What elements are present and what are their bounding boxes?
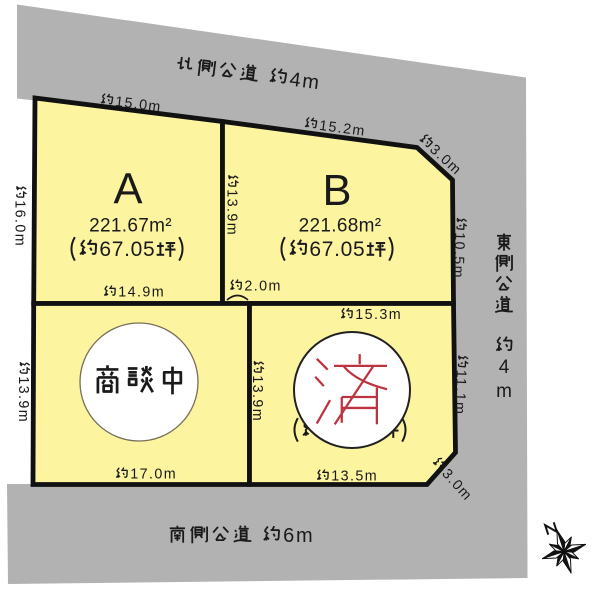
svg-text:13.9m: 13.9m bbox=[249, 375, 265, 422]
svg-text:13.5m: 13.5m bbox=[331, 469, 378, 485]
svg-text:221.68m²: 221.68m² bbox=[299, 216, 382, 237]
svg-text:13.9m: 13.9m bbox=[223, 189, 239, 236]
svg-text:11.1m: 11.1m bbox=[451, 369, 469, 415]
svg-text:15.3m: 15.3m bbox=[355, 307, 402, 323]
svg-text:A: A bbox=[113, 166, 142, 214]
svg-text:67.05: 67.05 bbox=[309, 238, 365, 261]
svg-text:4: 4 bbox=[499, 357, 510, 378]
svg-text:16.0m: 16.0m bbox=[11, 200, 27, 247]
svg-text:14.9m: 14.9m bbox=[118, 285, 165, 301]
svg-text:B: B bbox=[322, 167, 351, 215]
svg-text:6m: 6m bbox=[283, 525, 314, 547]
svg-text:221.67m²: 221.67m² bbox=[89, 216, 172, 237]
svg-text:10.5m: 10.5m bbox=[450, 232, 468, 279]
svg-text:17.0m: 17.0m bbox=[130, 467, 177, 483]
svg-text:m: m bbox=[496, 381, 512, 402]
svg-text:67.05: 67.05 bbox=[99, 238, 155, 261]
svg-text:2.0m: 2.0m bbox=[244, 279, 281, 295]
svg-text:13.9m: 13.9m bbox=[15, 376, 31, 423]
svg-text:4m: 4m bbox=[288, 69, 322, 95]
